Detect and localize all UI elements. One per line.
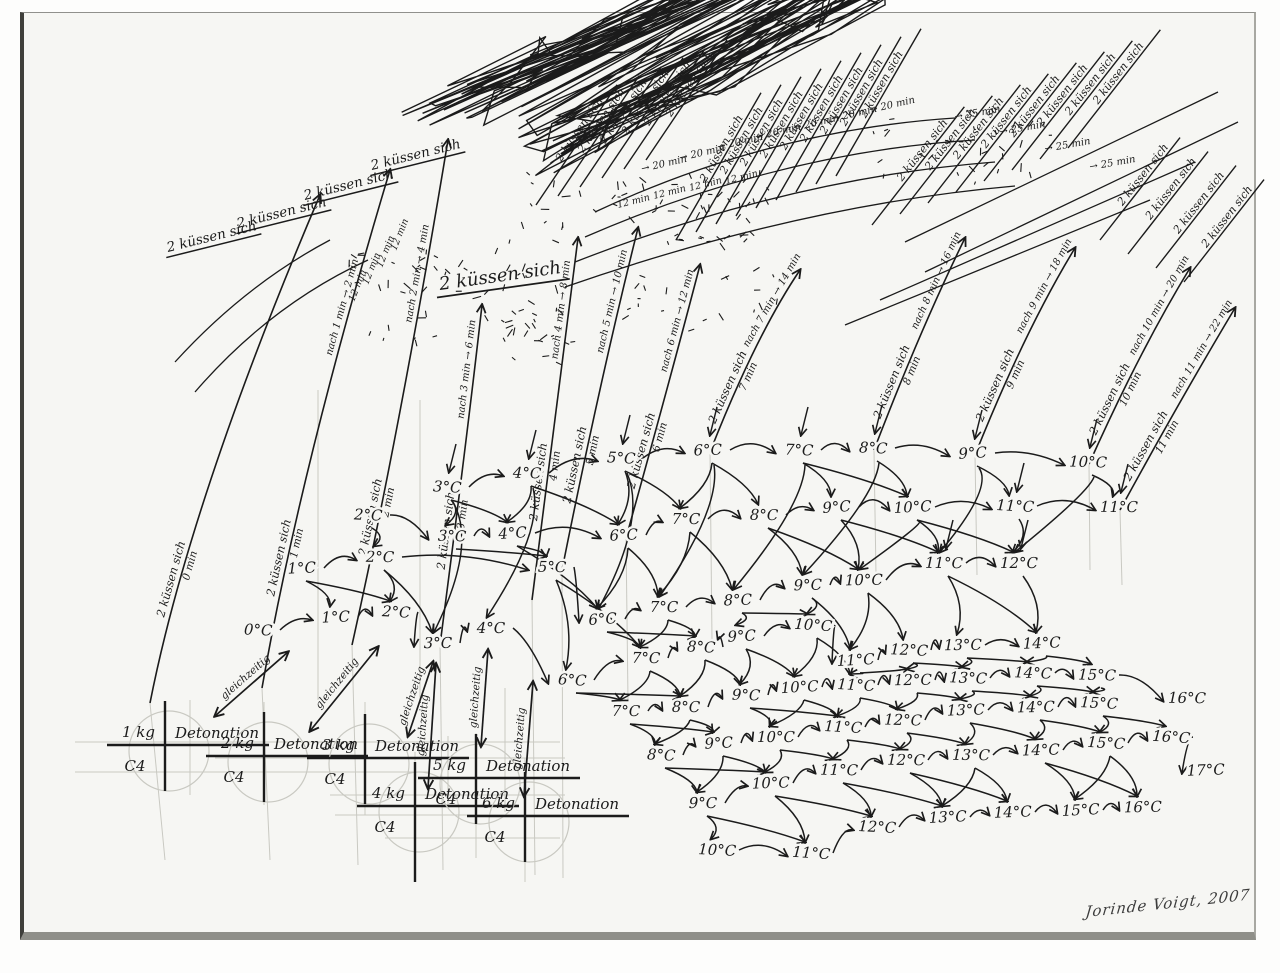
ink-tick xyxy=(754,310,755,313)
kiss-arc-label-group: 2 küssen sich8 min xyxy=(870,343,926,427)
ink-tick xyxy=(689,173,691,178)
temp-arrow xyxy=(985,640,1018,646)
ink-tick xyxy=(640,177,647,182)
temperature-node: 9°C xyxy=(958,443,988,463)
kiss-label-underlined-group: 2 küssen sich xyxy=(366,135,465,175)
temperature-node-group: 8°C xyxy=(687,637,717,656)
temp-arrow xyxy=(860,698,897,709)
temperature-node: 10°C xyxy=(780,677,820,697)
temp-arrow xyxy=(280,619,312,630)
temperature-node-group: 3°C xyxy=(424,634,453,652)
temp-arrow xyxy=(775,796,871,816)
gleichzeitig-arrow xyxy=(310,647,378,731)
temperature-node: 12°C xyxy=(1000,554,1039,572)
temp-arrow xyxy=(970,723,1035,739)
temperature-node-group: 9°C xyxy=(689,794,718,812)
temp-arrow xyxy=(948,576,960,634)
temperature-node: 10°C xyxy=(1069,452,1108,471)
temp-arrow xyxy=(830,577,840,585)
kiss-arc-note: nach 6 min → 12 min xyxy=(659,268,697,373)
temp-arrow xyxy=(760,584,784,600)
temp-arrow xyxy=(948,576,1036,632)
ink-tick xyxy=(415,340,417,346)
gleichzeitig-label-group: gleichzeitig xyxy=(218,652,273,702)
temperature-node-group: 6°C xyxy=(588,609,618,629)
temperature-node: 15°C xyxy=(1061,800,1100,820)
temp-arrow xyxy=(907,663,917,669)
detonation-c4: C4 xyxy=(124,757,145,775)
kiss-arc-note-group: nach 5 min → 10 min xyxy=(595,249,630,355)
ink-long-stroke xyxy=(845,200,1150,325)
ink-tick xyxy=(379,284,381,291)
temp-arrow xyxy=(868,593,903,639)
ink-tick xyxy=(369,331,371,336)
temp-arrow xyxy=(913,663,962,667)
temperature-node: 9°C xyxy=(793,576,822,595)
temp-arrow xyxy=(1040,720,1100,732)
temp-arrow xyxy=(725,786,747,803)
ink-tick xyxy=(721,276,729,280)
time-annotation-group: → 25 min xyxy=(1089,154,1137,173)
ink-tick xyxy=(544,221,547,223)
temperature-node: 17°C xyxy=(1186,760,1225,780)
temp-arrow xyxy=(474,529,489,536)
kiss-arc-note: nach 5 min → 10 min xyxy=(595,249,630,355)
temp-arrow xyxy=(736,613,746,625)
temp-arrow xyxy=(306,581,390,601)
temperature-node-group: 11°C xyxy=(996,496,1035,516)
temperature-node-group: 4°C xyxy=(512,464,543,483)
temperature-node-group: 10°C xyxy=(845,571,884,590)
ink-tick xyxy=(773,274,774,277)
ink-tick xyxy=(531,183,534,185)
time-annotation-group: 12 min xyxy=(616,192,651,211)
temperature-node-group: 6°C xyxy=(609,525,639,544)
ink-tick xyxy=(612,195,616,199)
detonation-c4: C4 xyxy=(484,828,505,846)
temperature-node: 11°C xyxy=(836,650,876,670)
temp-arrow xyxy=(658,532,690,596)
temp-arrow xyxy=(1093,688,1105,692)
temp-arrow xyxy=(718,637,723,647)
temperature-node-group: 13°C xyxy=(952,746,991,765)
temp-arrow xyxy=(707,816,805,842)
temperature-node: 9°C xyxy=(704,733,734,752)
temperature-node: 8°C xyxy=(687,637,717,656)
temp-arrow xyxy=(630,724,713,732)
temp-arrow xyxy=(764,625,789,636)
temperature-node: 8°C xyxy=(647,745,677,765)
ink-tick xyxy=(1029,172,1031,178)
temperature-node: 16°C xyxy=(1152,727,1192,747)
temperature-node-group: 11°C xyxy=(792,843,832,863)
temperature-node: 11°C xyxy=(837,675,877,695)
ink-tick xyxy=(524,331,528,337)
temperature-node-group: 10°C xyxy=(780,677,820,697)
ink-tick xyxy=(999,146,1004,151)
temperature-node-group: 8°C xyxy=(859,438,889,457)
temperature-node: 7°C xyxy=(612,702,641,720)
ink-tick xyxy=(507,329,512,336)
ink-tick xyxy=(593,209,596,212)
temperature-node-group: 8°C xyxy=(750,506,779,524)
temperature-node-group: 13°C xyxy=(928,807,967,827)
temperature-node: 12°C xyxy=(890,640,929,660)
temperature-node: 10°C xyxy=(757,728,796,746)
ink-tick xyxy=(388,325,389,331)
temp-arrow xyxy=(668,620,695,636)
ink-tick xyxy=(974,182,975,185)
ink-tick xyxy=(565,343,569,345)
time-annotation: 12 min xyxy=(616,192,651,211)
temperature-node-group: 2°C xyxy=(353,505,384,524)
temperature-node-group: 9°C xyxy=(793,576,822,595)
ink-tick xyxy=(542,356,549,357)
kiss-arc xyxy=(440,305,482,645)
ink-tick xyxy=(746,218,750,223)
ink-tick xyxy=(674,234,678,236)
temp-arrow xyxy=(628,548,658,596)
temperature-node: 0°C xyxy=(244,620,274,639)
ink-tick xyxy=(883,174,884,179)
scanned-artwork: 2 küssen sich2 küssen sich2 küssen sich2… xyxy=(0,0,1280,973)
temperature-node: 1°C xyxy=(287,558,317,577)
ink-tick xyxy=(525,323,530,328)
temp-arrow xyxy=(1035,720,1045,739)
ink-tick xyxy=(753,198,754,202)
kiss-label-underlined-group: 2 küssen sich xyxy=(299,165,398,205)
ink-tick xyxy=(513,328,515,336)
gleichzeitig-arrow xyxy=(215,652,288,716)
temperature-node-group: 0°C xyxy=(244,620,274,639)
temperature-node-group: 5°C xyxy=(607,448,637,468)
ink-tick xyxy=(485,315,488,321)
temp-arrow xyxy=(668,647,677,658)
detonation-symbol: 4 kgC4Detonation xyxy=(357,762,519,882)
temperature-node: 7°C xyxy=(650,598,679,616)
temp-arrow-long xyxy=(660,465,715,596)
kiss-arc-note-group: nach 7 min → 14 min xyxy=(741,252,803,349)
temp-arrow xyxy=(859,500,889,510)
temp-arrow xyxy=(460,627,467,643)
ink-tick xyxy=(681,205,688,208)
temp-arrow xyxy=(665,768,697,792)
temp-arrow xyxy=(993,748,1017,755)
temp-arrow xyxy=(1128,733,1147,743)
temperature-node: 4°C xyxy=(512,464,543,483)
ink-tick xyxy=(753,267,759,271)
down-chevron xyxy=(623,415,630,443)
ink-tick xyxy=(501,320,504,322)
temperature-node-group: 13°C xyxy=(949,668,988,688)
gleichzeitig-label: gleichzeitig xyxy=(218,652,273,702)
kiss-arc-label-group: 2 küssen sich4 min xyxy=(526,442,564,524)
gleichzeitig-label: gleichzeitig xyxy=(467,666,483,729)
kiss-arc-note-group: nach 8 min → 16 min xyxy=(909,230,963,331)
ink-tick xyxy=(957,172,958,175)
temp-arrow xyxy=(770,700,804,726)
down-chevron xyxy=(801,407,808,435)
temperature-node-group: 7°C xyxy=(785,440,815,459)
temp-arrow xyxy=(962,658,972,667)
temperature-node-group: 3°C xyxy=(438,527,467,546)
ink-tick xyxy=(509,239,510,243)
down-chevron xyxy=(1017,463,1024,491)
temperature-node: 3°C xyxy=(424,634,453,652)
temperature-node-group: 15°C xyxy=(1078,665,1117,684)
temperature-node-group: 7°C xyxy=(650,598,679,616)
pencil-guide-line xyxy=(874,450,876,575)
temp-arrow xyxy=(793,769,815,783)
temp-arrow xyxy=(990,670,1009,678)
gleichzeitig-arrow xyxy=(481,650,488,746)
temp-arrow xyxy=(597,548,628,608)
temperature-node: 12°C xyxy=(894,671,933,690)
temperature-node: 10°C xyxy=(794,615,834,635)
temp-arrow xyxy=(843,783,942,806)
temp-arrow xyxy=(665,768,765,772)
ink-tick xyxy=(512,357,515,360)
time-annotation-group: 12 min xyxy=(389,217,412,252)
temp-arrow xyxy=(935,501,991,509)
ink-tick xyxy=(579,191,581,197)
temperature-node: 13°C xyxy=(952,746,991,765)
ink-tick xyxy=(642,184,644,190)
ink-tick xyxy=(534,319,536,322)
temp-arrow xyxy=(730,444,775,453)
ink-tick xyxy=(530,203,532,206)
ink-tick xyxy=(434,266,437,270)
temp-arrow xyxy=(917,693,960,699)
ink-tick xyxy=(750,232,754,236)
detonation-c4: C4 xyxy=(435,790,456,808)
temperature-node-group: 15°C xyxy=(1087,733,1127,753)
temp-arrow xyxy=(965,723,975,744)
ink-long-arc xyxy=(175,240,330,362)
temperature-node-group: 9°C xyxy=(727,626,757,645)
temp-arrow xyxy=(928,752,947,760)
ink-tick xyxy=(506,325,513,328)
temp-arrow xyxy=(925,708,942,720)
temperature-node-group: 2°C xyxy=(381,602,412,622)
temperature-node-group: 1°C xyxy=(321,607,351,626)
temperature-node-group: 5°C xyxy=(538,558,567,577)
temp-arrow xyxy=(620,671,650,700)
temperature-node: 16°C xyxy=(1168,689,1207,707)
temp-arrow xyxy=(741,733,752,743)
temperature-node-group: 14°C xyxy=(993,802,1032,822)
temp-arrow xyxy=(469,474,503,487)
temperature-node-group: 2°C xyxy=(365,548,395,566)
temp-arrow xyxy=(765,750,782,772)
ink-tick xyxy=(540,335,547,340)
temp-arrow xyxy=(886,564,920,580)
temp-arrow xyxy=(995,452,1064,465)
kiss-arc-note-group: nach 6 min → 12 min xyxy=(659,268,697,373)
temp-arrow xyxy=(648,704,662,711)
temperature-node-group: 14°C xyxy=(1014,663,1053,683)
temperature-node: 5°C xyxy=(538,558,567,577)
temp-arrow xyxy=(535,527,600,538)
ink-tick xyxy=(425,311,426,317)
ink-tick xyxy=(433,336,437,337)
temperature-node: 15°C xyxy=(1078,665,1117,684)
ink-tick xyxy=(512,311,516,315)
temperature-node: 11°C xyxy=(1100,498,1139,516)
temp-arrow xyxy=(513,628,548,683)
temperature-node-group: 14°C xyxy=(1022,633,1061,653)
temperature-node-group: 10°C xyxy=(698,840,737,860)
temperature-node-group: 11°C xyxy=(1100,498,1139,516)
ink-tick xyxy=(400,292,405,293)
ink-tick xyxy=(997,169,998,173)
ink-tick xyxy=(719,313,723,320)
kiss-arc-label: 2 küssen sich xyxy=(263,518,294,599)
temperature-node-group: 8°C xyxy=(723,591,753,610)
detonation-kg: 6 kg xyxy=(482,794,515,812)
temp-arrow xyxy=(686,598,714,607)
ink-tick xyxy=(528,301,535,305)
temp-arrow xyxy=(975,768,1007,801)
ink-tick xyxy=(570,341,575,342)
temperature-node-group: 9°C xyxy=(704,733,734,752)
temperature-node: 3°C xyxy=(438,527,467,546)
temp-arrow xyxy=(680,463,712,508)
temperature-node: 12°C xyxy=(887,751,926,770)
ink-tick xyxy=(383,338,384,341)
temperature-node-group: 9°C xyxy=(732,686,762,705)
temperature-node-group: 1°C xyxy=(287,558,317,577)
temp-arrow xyxy=(594,661,622,680)
temp-arrow xyxy=(414,612,418,646)
temperature-node: 15°C xyxy=(1087,733,1127,753)
kiss-arc-note: nach 10 min → 20 min xyxy=(1127,254,1192,357)
temperature-node-group: 11°C xyxy=(820,761,859,780)
ink-tick xyxy=(627,308,630,309)
temperature-node-group: 16°C xyxy=(1168,689,1207,707)
ink-tick xyxy=(623,181,626,186)
temperature-node: 7°C xyxy=(632,649,661,668)
temperature-node-group: 10°C xyxy=(757,728,796,746)
temp-arrow xyxy=(324,556,356,568)
temp-arrow xyxy=(833,740,849,759)
temperature-node: 9°C xyxy=(822,497,852,517)
temp-arrow xyxy=(847,740,900,749)
temp-arrow xyxy=(861,758,882,770)
temperature-node: 13°C xyxy=(944,636,983,655)
ink-tick xyxy=(495,248,497,254)
detonation-kg: 2 kg xyxy=(220,734,254,752)
ink-tick xyxy=(621,193,627,195)
temperature-node: 9°C xyxy=(732,686,762,705)
detonation-kg: 5 kg xyxy=(433,756,466,774)
temp-arrow xyxy=(970,810,989,817)
temp-arrow xyxy=(646,521,662,535)
temperature-node-group: 11°C xyxy=(925,554,964,572)
ink-tick xyxy=(703,319,707,321)
pencil-guide-line xyxy=(1120,510,1122,585)
kiss-arc xyxy=(874,238,965,450)
temperature-node: 1°C xyxy=(321,607,351,626)
ink-tick xyxy=(878,159,883,162)
temperature-node-group: 10°C xyxy=(1069,452,1108,471)
pencil-guide-line xyxy=(1089,464,1090,570)
detonation-kg: 4 kg xyxy=(371,784,405,802)
temp-arrow xyxy=(707,816,716,839)
kiss-arc-label-group: 2 küssen sich0 min xyxy=(153,539,201,623)
temp-arrow xyxy=(935,672,944,681)
temp-arrow xyxy=(1058,698,1075,707)
ink-tick xyxy=(527,172,530,175)
temp-arrow xyxy=(607,632,640,647)
temp-arrow xyxy=(897,693,918,709)
ink-tick xyxy=(562,196,571,197)
pencil-guide-line xyxy=(710,452,712,640)
temperature-node: 11°C xyxy=(925,554,964,572)
temperature-node-group: 9°C xyxy=(958,443,988,463)
kiss-label-big-group: 2 küssen sich xyxy=(434,256,570,297)
temp-arrow xyxy=(895,445,949,456)
temp-arrow xyxy=(742,613,807,614)
temperature-node-group: 12°C xyxy=(894,671,933,690)
temperature-node: 2°C xyxy=(365,548,395,566)
temperature-node-group: 11°C xyxy=(824,717,863,737)
temperature-node: 4°C xyxy=(497,523,528,543)
temp-arrow xyxy=(1035,805,1057,813)
temperature-node-group: 15°C xyxy=(1080,693,1119,713)
ink-tick xyxy=(622,315,628,319)
temperature-node: 16°C xyxy=(1124,798,1163,817)
kiss-arc xyxy=(150,195,320,703)
temperature-node-group: 12°C xyxy=(887,751,926,770)
temperature-node: 13°C xyxy=(947,700,986,719)
ink-tick xyxy=(652,211,656,213)
temperature-node-group: 13°C xyxy=(944,636,983,655)
temp-arrow xyxy=(850,593,869,649)
temp-arrow-long xyxy=(734,465,805,589)
pencil-guide-line xyxy=(562,570,563,878)
ink-tick xyxy=(884,129,888,131)
temp-arrow xyxy=(833,830,853,853)
ink-tick xyxy=(434,256,438,258)
temperature-node: 12°C xyxy=(858,817,897,837)
temp-arrow xyxy=(618,471,629,524)
temperature-node-group: 12°C xyxy=(884,710,923,729)
kiss-arc-label: 2 küssen sich xyxy=(559,425,589,506)
temperature-node-group: 11°C xyxy=(836,650,876,670)
temp-arrow xyxy=(931,640,939,650)
ink-tick xyxy=(391,262,394,263)
temp-arrow xyxy=(768,685,776,695)
temperature-node-group: 7°C xyxy=(672,510,701,528)
kiss-arc-note: nach 2 min → 4 min xyxy=(403,224,431,324)
ink-tick xyxy=(696,212,700,219)
temp-arrow xyxy=(966,557,995,566)
temp-arrow xyxy=(402,555,528,570)
time-annotation: → 25 min xyxy=(1089,154,1137,173)
temp-arrow xyxy=(900,733,911,749)
temperature-node: 12°C xyxy=(884,710,923,729)
temp-arrow xyxy=(655,720,690,744)
detonation-c4: C4 xyxy=(223,768,244,786)
ink-tick xyxy=(698,238,702,239)
kiss-arc-note: nach 11 min → 22 min xyxy=(1169,298,1235,401)
temperature-node: 3°C xyxy=(433,477,463,497)
temp-arrow xyxy=(865,718,879,727)
ink-tick xyxy=(701,205,703,209)
temperature-node: 14°C xyxy=(1014,663,1053,683)
temperature-node: 7°C xyxy=(672,510,701,528)
